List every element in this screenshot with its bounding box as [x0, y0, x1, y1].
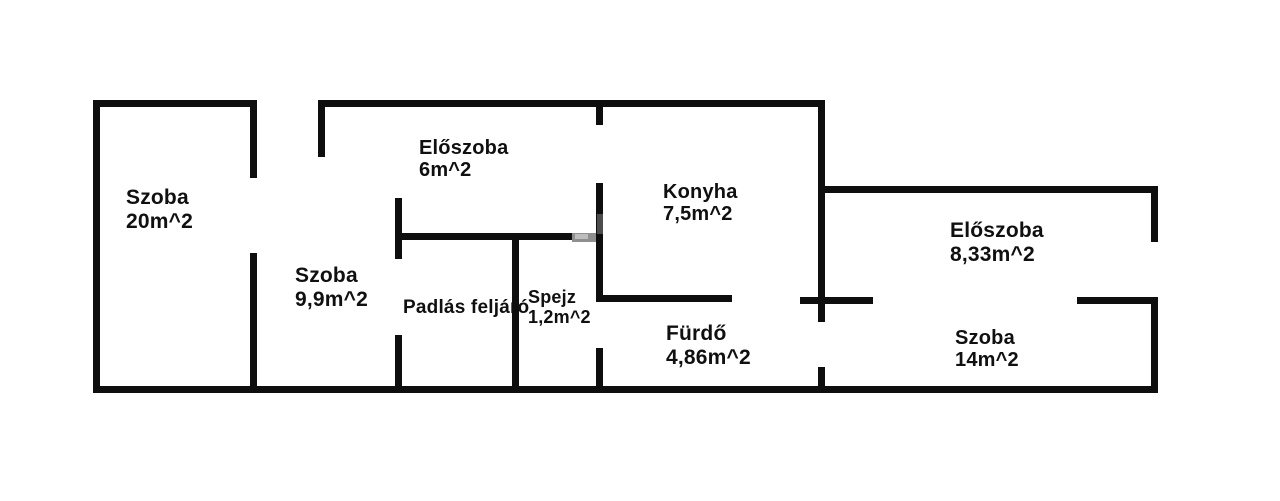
outer-wall-left — [93, 100, 100, 393]
room-label-szoba-14: Szoba14m^2 — [955, 327, 1019, 372]
room-label-eloszoba-6: Előszoba6m^2 — [419, 137, 508, 182]
room-area: 7,5m^2 — [663, 203, 738, 225]
watermark-remnant — [597, 214, 603, 234]
room-label-padlas-feljaro: Padlás feljáró — [403, 297, 529, 318]
mid-vertical-wall-lower — [818, 367, 825, 393]
padlas-divider-upper — [395, 198, 402, 259]
room-name: Spejz — [528, 287, 591, 307]
room-label-konyha: Konyha7,5m^2 — [663, 181, 738, 226]
konyha-furdo-divider — [596, 295, 732, 302]
konyha-left-wall-mid — [596, 183, 603, 302]
room-name: Szoba — [126, 186, 193, 210]
room-name: Padlás feljáró — [403, 297, 529, 318]
outer-wall-right-upper — [1151, 186, 1158, 242]
room-label-eloszoba-8-33: Előszoba8,33m^2 — [950, 219, 1044, 266]
room-area: 9,9m^2 — [295, 288, 368, 312]
room-name: Szoba — [955, 327, 1019, 349]
room-name: Szoba — [295, 264, 368, 288]
outer-wall-top-main — [318, 100, 825, 107]
outer-wall-top-left — [93, 100, 257, 107]
floor-plan: Szoba20m^2Előszoba6m^2Konyha7,5m^2Előszo… — [0, 0, 1280, 501]
furdo-szoba14-divider-stub — [800, 297, 873, 304]
room-name: Előszoba — [419, 137, 508, 159]
right-section-top-wall — [818, 186, 1158, 193]
konyha-left-wall-top — [596, 100, 603, 125]
room-label-furdo: Fürdő4,86m^2 — [666, 322, 751, 369]
eloszoba833-szoba14-divider — [1077, 297, 1158, 304]
watermark-remnant — [575, 234, 588, 239]
room-area: 14m^2 — [955, 349, 1019, 371]
eloszoba6-bottom-wall — [395, 233, 600, 240]
room-area: 8,33m^2 — [950, 243, 1044, 267]
szoba20-divider-lower — [250, 253, 257, 393]
room-area: 20m^2 — [126, 210, 193, 234]
outer-wall-right-lower — [1151, 297, 1158, 393]
szoba20-divider-upper — [250, 100, 257, 178]
room-label-szoba-20: Szoba20m^2 — [126, 186, 193, 233]
room-name: Előszoba — [950, 219, 1044, 243]
padlas-divider-lower — [395, 335, 402, 393]
room-area: 6m^2 — [419, 159, 508, 181]
room-name: Fürdő — [666, 322, 751, 346]
room-label-szoba-9-9: Szoba9,9m^2 — [295, 264, 368, 311]
room-name: Konyha — [663, 181, 738, 203]
spejz-right-wall-lower — [596, 348, 603, 393]
mid-vertical-wall-upper — [818, 100, 825, 322]
entry-stub-wall — [318, 100, 325, 157]
room-area: 1,2m^2 — [528, 307, 591, 327]
room-area: 4,86m^2 — [666, 346, 751, 370]
room-label-spejz: Spejz1,2m^2 — [528, 287, 591, 327]
